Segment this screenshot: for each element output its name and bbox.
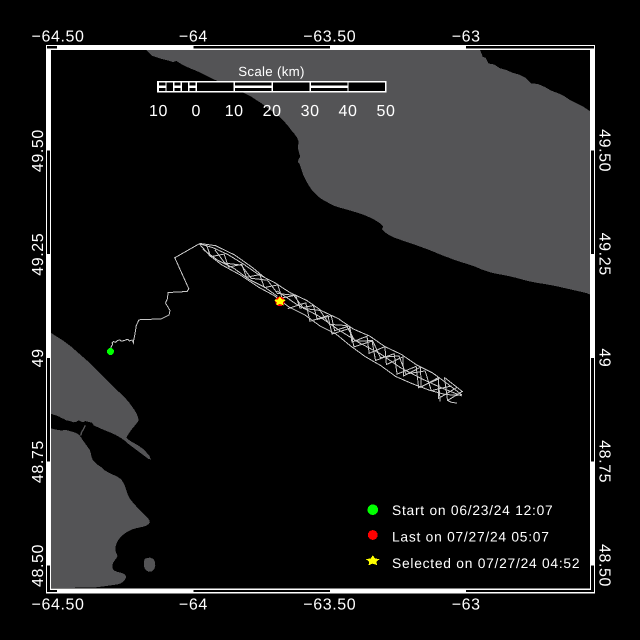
svg-text:48.75: 48.75 <box>596 440 613 483</box>
svg-text:20: 20 <box>263 103 282 120</box>
svg-text:0: 0 <box>191 103 201 120</box>
svg-text:Start on 06/23/24 12:07: Start on 06/23/24 12:07 <box>392 503 553 518</box>
svg-text:−63.50: −63.50 <box>303 29 356 46</box>
svg-text:Scale (km): Scale (km) <box>238 64 305 79</box>
svg-text:10: 10 <box>225 103 244 120</box>
svg-text:−63: −63 <box>452 596 481 613</box>
svg-text:−64: −64 <box>179 596 208 613</box>
svg-text:40: 40 <box>339 103 358 120</box>
svg-text:48.50: 48.50 <box>596 544 613 587</box>
svg-text:48.50: 48.50 <box>30 544 47 587</box>
svg-text:49.50: 49.50 <box>30 129 47 172</box>
svg-text:−63.50: −63.50 <box>303 596 356 613</box>
svg-text:−64: −64 <box>179 29 208 46</box>
svg-text:49.50: 49.50 <box>596 129 613 172</box>
svg-text:−64.50: −64.50 <box>32 596 85 613</box>
svg-text:−63: −63 <box>452 29 481 46</box>
svg-text:49.25: 49.25 <box>30 233 47 276</box>
svg-text:49: 49 <box>30 348 47 367</box>
svg-text:49.25: 49.25 <box>596 233 613 276</box>
svg-text:10: 10 <box>149 103 168 120</box>
svg-text:49: 49 <box>596 348 613 367</box>
svg-text:30: 30 <box>301 103 320 120</box>
svg-text:50: 50 <box>377 103 396 120</box>
svg-text:48.75: 48.75 <box>30 440 47 483</box>
svg-text:Selected on 07/27/24 04:52: Selected on 07/27/24 04:52 <box>392 556 580 571</box>
svg-text:Last on 07/27/24 05:07: Last on 07/27/24 05:07 <box>392 530 550 545</box>
svg-text:−64.50: −64.50 <box>32 29 85 46</box>
